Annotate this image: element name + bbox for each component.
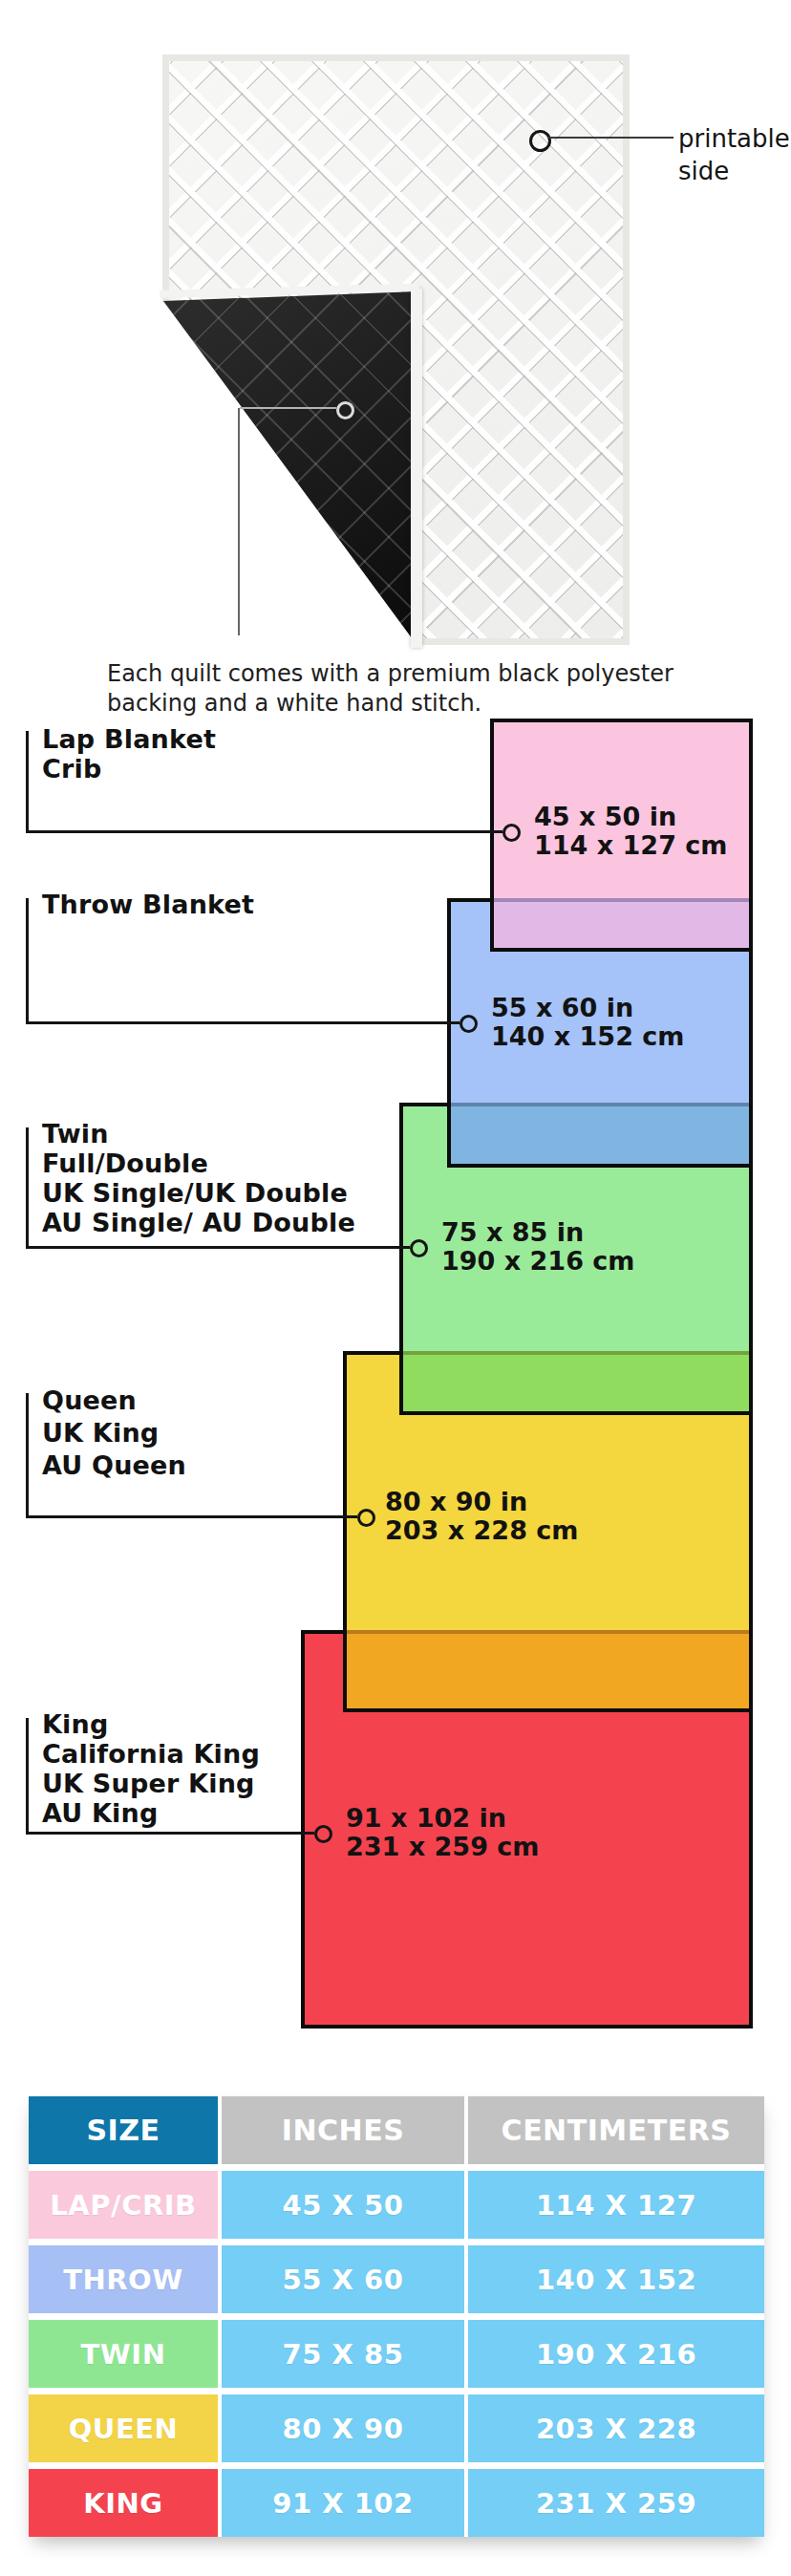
throw-marker-icon — [460, 1015, 478, 1033]
row-inches: 75 X 85 — [222, 2320, 464, 2388]
quilt-size-guide-infographic: printable side Each quilt comes with a p… — [0, 0, 791, 2576]
table-row-queen: QUEEN 80 X 90 203 X 228 — [29, 2394, 764, 2462]
row-inches: 55 X 60 — [222, 2245, 464, 2313]
queen-label-line3: AU Queen — [42, 1449, 186, 1482]
row-centimeters: 231 X 259 — [468, 2469, 764, 2537]
king-leader-vertical — [26, 1718, 29, 1835]
table-row-twin: TWIN 75 X 85 190 X 216 — [29, 2320, 764, 2388]
throw-label: Throw Blanket — [42, 890, 254, 919]
row-inches: 91 X 102 — [222, 2469, 464, 2537]
printable-side-marker-icon — [529, 130, 551, 152]
backing-marker-icon — [336, 401, 354, 419]
row-inches: 45 X 50 — [222, 2171, 464, 2239]
queen-label-line2: UK King — [42, 1417, 186, 1449]
throw-label-line1: Throw Blanket — [42, 890, 254, 919]
queen-leader-horizontal — [26, 1515, 357, 1518]
twin-label: Twin Full/Double UK Single/UK Double AU … — [42, 1119, 355, 1237]
quilt-caption-line2: backing and a white hand stitch. — [107, 689, 673, 719]
queen-king-overlap — [347, 1630, 749, 1708]
twin-label-line3: UK Single/UK Double — [42, 1178, 355, 1208]
throw-leader-vertical — [26, 898, 29, 1024]
row-label: TWIN — [29, 2320, 218, 2388]
throw-size-cm: 140 x 152 cm — [491, 1022, 684, 1051]
throw-size-inches: 55 x 60 in — [491, 994, 684, 1022]
twin-label-line2: Full/Double — [42, 1148, 355, 1178]
queen-size-inches: 80 x 90 in — [385, 1488, 578, 1516]
twin-label-line1: Twin — [42, 1119, 355, 1148]
queen-marker-icon — [357, 1509, 375, 1527]
queen-size-cm: 203 x 228 cm — [385, 1516, 578, 1545]
row-label: QUEEN — [29, 2394, 218, 2462]
printable-side-label: printable side — [678, 122, 790, 187]
row-centimeters: 114 X 127 — [468, 2171, 764, 2239]
row-label: THROW — [29, 2245, 218, 2313]
king-label-line4: AU King — [42, 1798, 260, 1828]
king-label-line2: California King — [42, 1739, 260, 1769]
printable-side-leader-line — [547, 137, 673, 139]
quilt-caption: Each quilt comes with a premium black po… — [107, 659, 673, 719]
row-label: LAP/CRIB — [29, 2171, 218, 2239]
lap-crib-leader-horizontal — [26, 830, 502, 833]
size-table: SIZE INCHES CENTIMETERS LAP/CRIB 45 X 50… — [29, 2096, 764, 2537]
table-row-lap-crib: LAP/CRIB 45 X 50 114 X 127 — [29, 2171, 764, 2239]
king-label-line3: UK Super King — [42, 1769, 260, 1798]
backing-leader-line-vertical — [238, 408, 240, 635]
queen-label: Queen UK King AU Queen — [42, 1385, 186, 1482]
twin-marker-icon — [410, 1239, 428, 1257]
table-row-throw: THROW 55 X 60 140 X 152 — [29, 2245, 764, 2313]
twin-queen-overlap — [403, 1351, 749, 1411]
queen-size-note: 80 x 90 in 203 x 228 cm — [385, 1488, 578, 1545]
size-table-body: LAP/CRIB 45 X 50 114 X 127 THROW 55 X 60… — [29, 2171, 764, 2537]
throw-twin-overlap — [451, 1103, 749, 1164]
header-inches: INCHES — [222, 2096, 464, 2164]
quilt-caption-line1: Each quilt comes with a premium black po… — [107, 659, 673, 689]
queen-leader-vertical — [26, 1393, 29, 1518]
lap-crib-size-inches: 45 x 50 in — [534, 803, 727, 831]
quilt-black-backing-fold — [158, 290, 425, 648]
twin-size-cm: 190 x 216 cm — [441, 1247, 634, 1276]
lap-crib-leader-vertical — [26, 731, 29, 833]
row-inches: 80 X 90 — [222, 2394, 464, 2462]
table-row-king: KING 91 X 102 231 X 259 — [29, 2469, 764, 2537]
row-centimeters: 203 X 228 — [468, 2394, 764, 2462]
king-label-line1: King — [42, 1709, 260, 1739]
row-centimeters: 140 X 152 — [468, 2245, 764, 2313]
row-label: KING — [29, 2469, 218, 2537]
lap-crib-label-line1: Lap Blanket — [42, 724, 216, 754]
lap-throw-overlap — [494, 898, 749, 948]
backing-leader-line-horizontal — [240, 407, 336, 409]
twin-leader-horizontal — [26, 1246, 410, 1249]
king-size-inches: 91 x 102 in — [346, 1804, 539, 1833]
king-size-note: 91 x 102 in 231 x 259 cm — [346, 1804, 539, 1861]
lap-crib-label: Lap Blanket Crib — [42, 724, 216, 784]
printable-side-label-line1: printable — [678, 122, 790, 155]
twin-leader-vertical — [26, 1127, 29, 1249]
lap-crib-size-note: 45 x 50 in 114 x 127 cm — [534, 803, 727, 860]
twin-size-inches: 75 x 85 in — [441, 1218, 634, 1247]
king-leader-horizontal — [26, 1832, 314, 1835]
king-marker-icon — [314, 1825, 332, 1843]
throw-size-note: 55 x 60 in 140 x 152 cm — [491, 994, 684, 1051]
quilt-binding-edge-vertical — [411, 289, 422, 648]
header-size: SIZE — [29, 2096, 218, 2164]
twin-label-line4: AU Single/ AU Double — [42, 1208, 355, 1237]
lap-crib-marker-icon — [502, 824, 521, 842]
throw-leader-horizontal — [26, 1021, 460, 1024]
printable-side-label-line2: side — [678, 155, 790, 187]
header-centimeters: CENTIMETERS — [468, 2096, 764, 2164]
lap-crib-label-line2: Crib — [42, 754, 216, 784]
king-size-cm: 231 x 259 cm — [346, 1833, 539, 1861]
row-centimeters: 190 X 216 — [468, 2320, 764, 2388]
lap-crib-size-cm: 114 x 127 cm — [534, 831, 727, 860]
size-table-header-row: SIZE INCHES CENTIMETERS — [29, 2096, 764, 2164]
twin-size-note: 75 x 85 in 190 x 216 cm — [441, 1218, 634, 1276]
queen-label-line1: Queen — [42, 1385, 186, 1417]
king-label: King California King UK Super King AU Ki… — [42, 1709, 260, 1828]
